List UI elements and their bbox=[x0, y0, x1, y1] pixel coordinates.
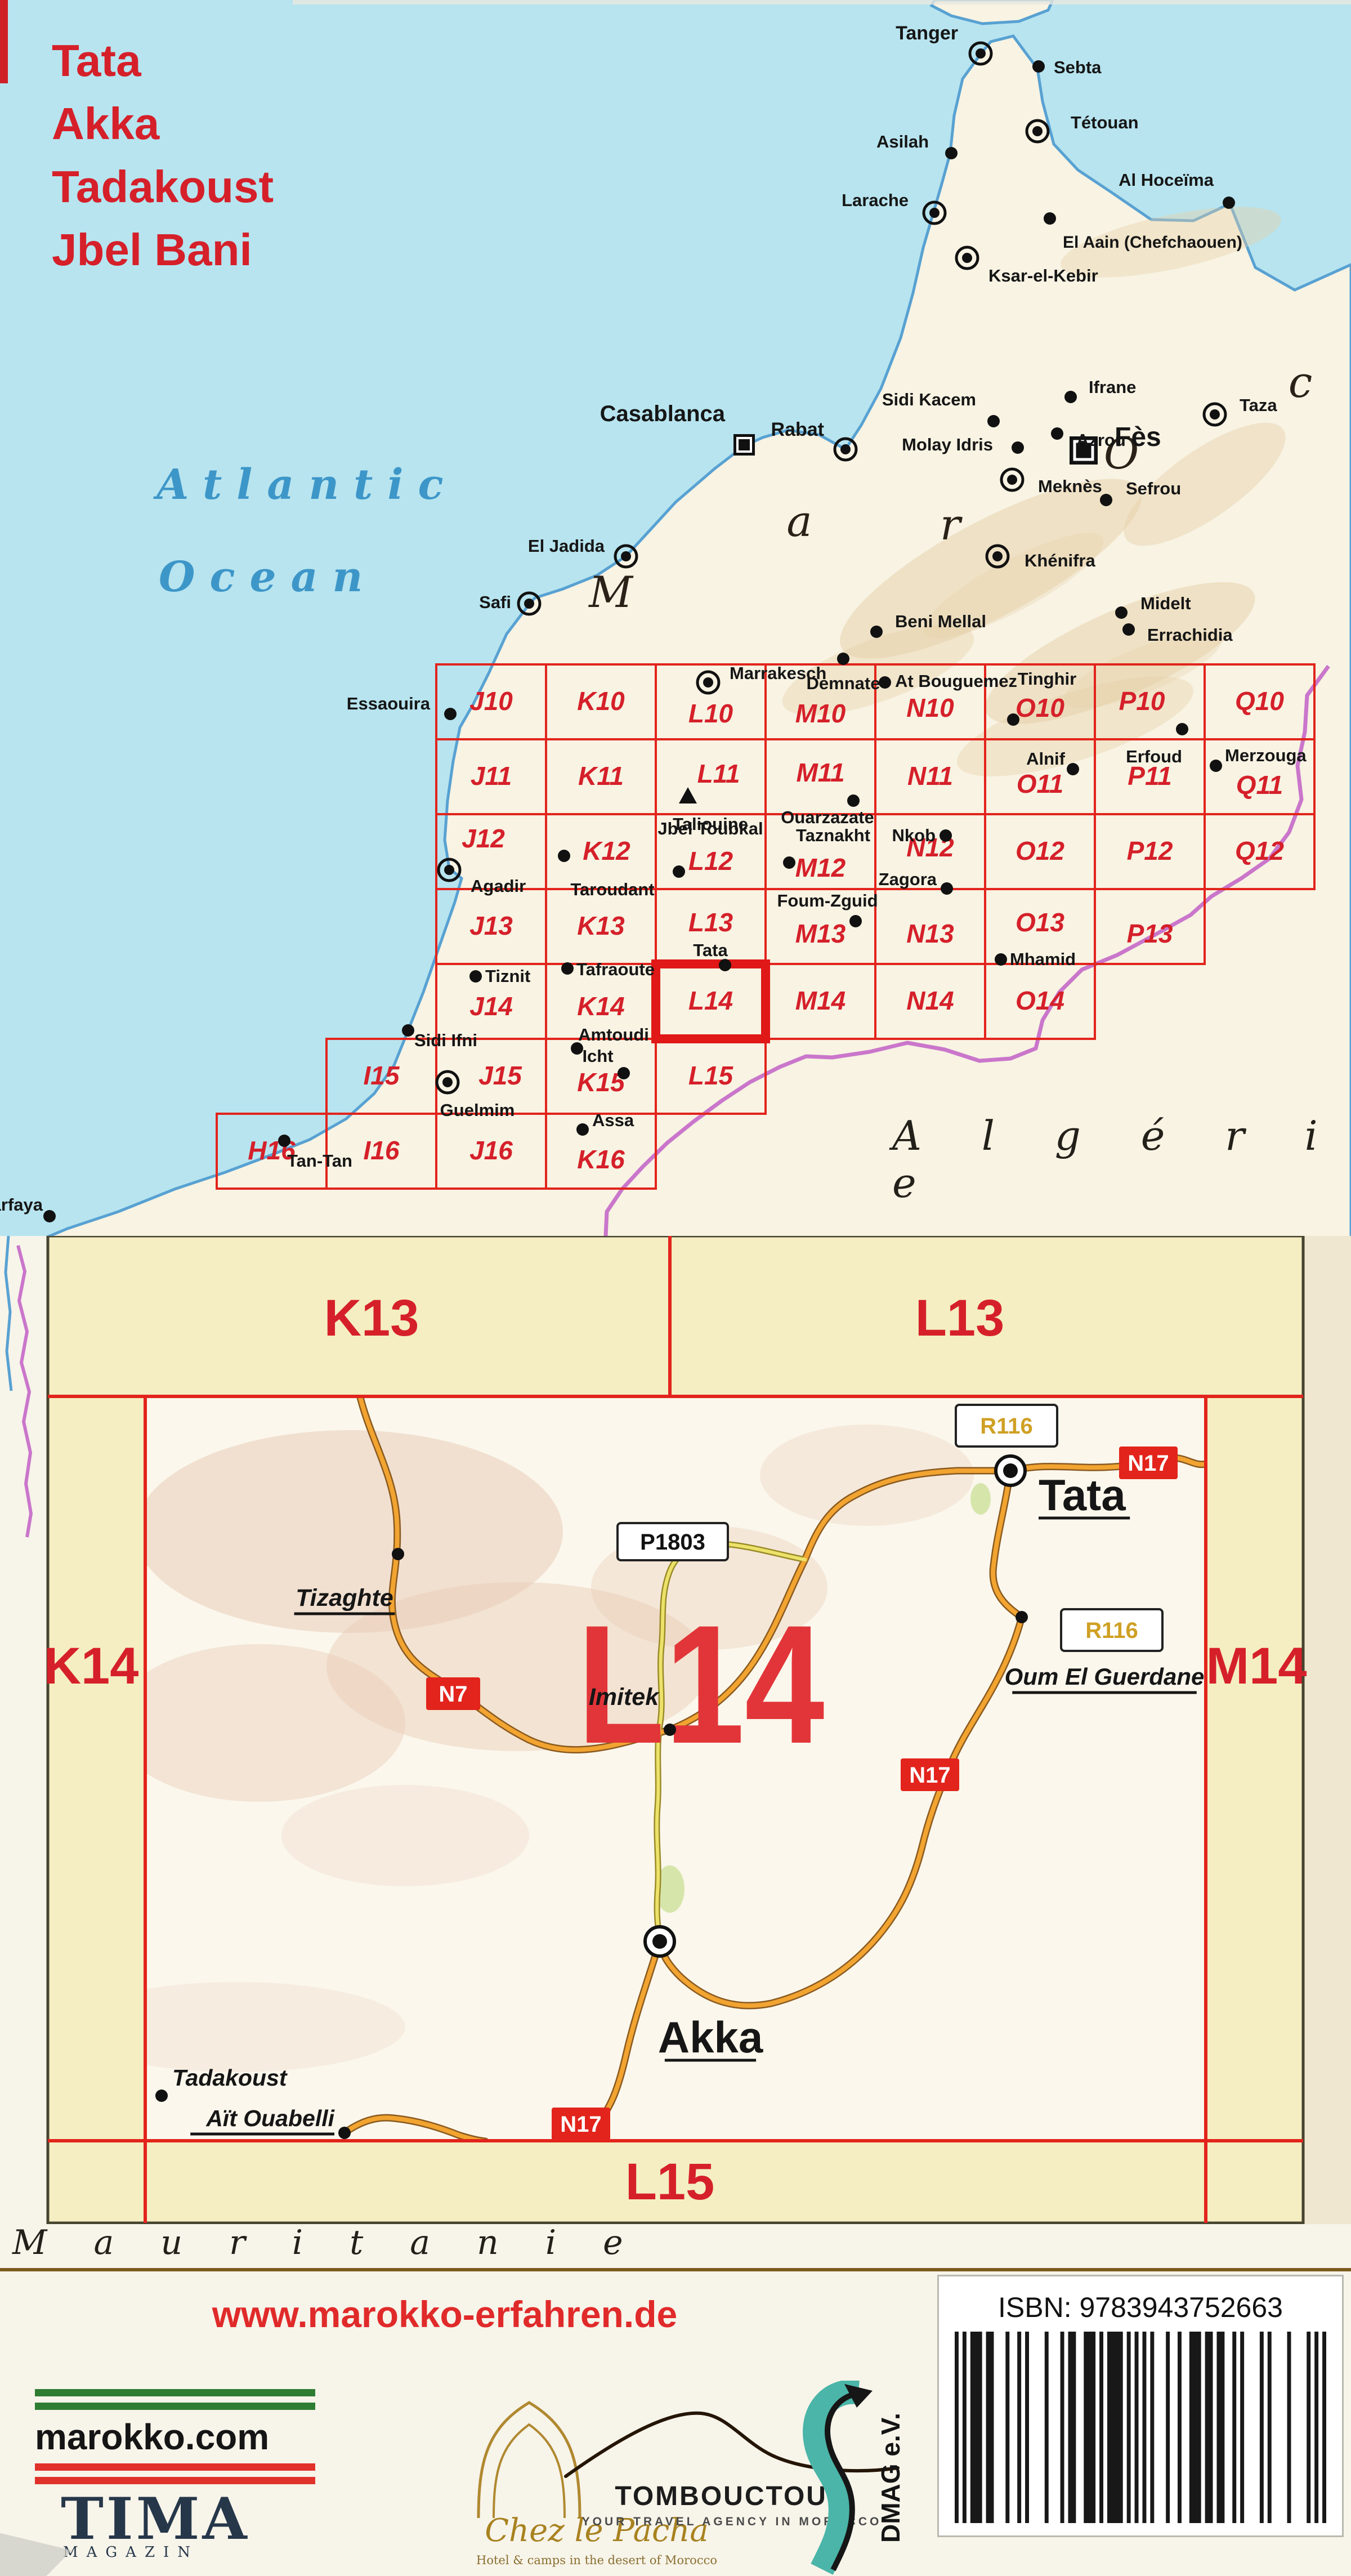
city-label-alnif: Alnif bbox=[1026, 749, 1066, 769]
barcode-bar bbox=[1099, 2332, 1103, 2523]
city-label-rabat: Rabat bbox=[771, 419, 824, 440]
grid-cell-label-M14: M14 bbox=[795, 986, 846, 1015]
city-label-taliouine: Taliouine bbox=[673, 814, 748, 834]
city-marker-zagora bbox=[941, 882, 953, 895]
city-label-tiznit: Tiznit bbox=[485, 966, 530, 986]
city-marker-tan-tan bbox=[278, 1135, 290, 1147]
route-shield-n17-label: N17 bbox=[909, 1763, 950, 1788]
city-label-mhamid: Mhamid bbox=[1010, 949, 1076, 969]
title-line-2: Akka bbox=[52, 92, 274, 155]
city-label-sebta: Sebta bbox=[1054, 57, 1102, 77]
barcode-bar bbox=[963, 2332, 967, 2523]
city-label-casablanca: Casablanca bbox=[600, 401, 726, 426]
city-label-sidi-ifni: Sidi Ifni bbox=[414, 1030, 477, 1050]
city-label-mekn-s: Meknès bbox=[1038, 476, 1102, 496]
title-line-4: Jbel Bani bbox=[52, 218, 274, 282]
barcode-bar bbox=[1017, 2332, 1021, 2523]
barcode-bar bbox=[1025, 2332, 1029, 2523]
city-marker-kh-nifra bbox=[992, 551, 1003, 561]
city-marker-taznakht bbox=[783, 856, 795, 869]
band-label-L15: L15 bbox=[625, 2153, 715, 2211]
city-marker-foum-zguid bbox=[849, 915, 862, 927]
city-marker-tanger bbox=[976, 48, 986, 59]
grid-cell-label-I16: I16 bbox=[364, 1136, 400, 1165]
cover-edge-top bbox=[293, 0, 1351, 5]
grid-cell-label-L14: L14 bbox=[688, 986, 733, 1015]
barcode-bar bbox=[1287, 2332, 1291, 2523]
place-label-imitek: Imitek bbox=[589, 1684, 660, 1711]
grid-cell-label-K16: K16 bbox=[577, 1145, 625, 1174]
title-line-3: Tadakoust bbox=[52, 155, 274, 218]
city-marker-alnif bbox=[1067, 763, 1079, 775]
city-label-tarfaya: Tarfaya bbox=[0, 1195, 43, 1215]
tima-label: TIMA bbox=[61, 2491, 250, 2547]
city-label-erfoud: Erfoud bbox=[1126, 747, 1182, 766]
city-marker-at-bouguemez bbox=[879, 676, 891, 689]
grid-cell-label-J12: J12 bbox=[462, 824, 505, 853]
place-marker-tata bbox=[1003, 1463, 1018, 1478]
city-label-icht: Icht bbox=[582, 1046, 613, 1066]
barcode-bar bbox=[1166, 2332, 1170, 2523]
city-marker-tarfaya bbox=[43, 1210, 56, 1222]
barcode bbox=[955, 2332, 1326, 2523]
grid-cell-label-J16: J16 bbox=[469, 1136, 513, 1165]
grid-cell-label-O14: O14 bbox=[1016, 986, 1064, 1015]
city-label-tan-tan: Tan-Tan bbox=[287, 1151, 352, 1171]
city-label-taroudant: Taroudant bbox=[570, 879, 654, 899]
barcode-bar bbox=[1189, 2332, 1201, 2523]
barcode-bar bbox=[1268, 2332, 1272, 2523]
grid-cell-label-L15: L15 bbox=[688, 1061, 734, 1090]
country-letter-c: c bbox=[1289, 357, 1313, 407]
city-label-sidi-kacem: Sidi Kacem bbox=[882, 390, 976, 409]
red-stripe-icon bbox=[35, 2477, 315, 2484]
city-marker-nkob bbox=[940, 829, 952, 842]
grid-cell-label-L10: L10 bbox=[688, 699, 733, 728]
barcode-bar bbox=[1314, 2332, 1318, 2523]
country-letter-a: a bbox=[786, 496, 812, 546]
city-marker-beni-mellal bbox=[870, 626, 883, 638]
logo-marokko-com[interactable]: marokko.com bbox=[35, 2389, 315, 2490]
grid-cell-label-Q11: Q11 bbox=[1236, 770, 1283, 800]
country-letter-M: M bbox=[588, 567, 634, 617]
barcode-bar bbox=[1061, 2332, 1064, 2523]
barcode-bar bbox=[1135, 2332, 1139, 2523]
ocean-label-ocean: Ocean bbox=[159, 553, 377, 601]
grid-cell-label-P10: P10 bbox=[1119, 686, 1165, 716]
grid-cell-label-Q12: Q12 bbox=[1235, 836, 1284, 865]
grid-cell-label-L13: L13 bbox=[688, 908, 733, 937]
city-marker-agadir bbox=[444, 865, 454, 875]
city-marker-al-hoce-ma bbox=[1223, 197, 1235, 209]
place-label-oum-el-guerdane: Oum El Guerdane bbox=[1005, 1663, 1205, 1690]
grid-cell-label-N13: N13 bbox=[906, 919, 954, 948]
ocean-label-atlantic: Atlantic bbox=[156, 461, 458, 509]
barcode-bar bbox=[1232, 2332, 1236, 2523]
grid-cell-label-K13: K13 bbox=[577, 911, 625, 940]
logo-tima[interactable]: TIMA MAGAZIN bbox=[61, 2491, 250, 2561]
city-label-assa: Assa bbox=[592, 1110, 634, 1130]
route-shield-n17-label: N17 bbox=[1128, 1451, 1169, 1476]
city-label-demnate: Demnate bbox=[807, 673, 880, 693]
place-label-tadakoust: Tadakoust bbox=[172, 2065, 288, 2091]
city-label-sefrou: Sefrou bbox=[1126, 479, 1181, 498]
city-label-ouarzazate: Ouarzazate bbox=[781, 807, 874, 827]
place-marker-tadakoust bbox=[155, 2090, 168, 2102]
barcode-bar bbox=[1216, 2332, 1224, 2523]
city-label-merzouga: Merzouga bbox=[1225, 745, 1307, 765]
isbn-box: ISBN: 9783943752663 bbox=[937, 2275, 1344, 2537]
pacha-sublabel: Hotel & camps in the desert of Morocco bbox=[428, 2553, 766, 2567]
band-label-M14: M14 bbox=[1206, 1637, 1307, 1695]
city-label-kh-nifra: Khénifra bbox=[1025, 551, 1096, 570]
grid-cell-label-M10: M10 bbox=[795, 699, 846, 728]
grid-cell-label-N10: N10 bbox=[906, 693, 954, 722]
city-marker-mekn-s bbox=[1007, 475, 1017, 485]
grid-cell-label-M11: M11 bbox=[796, 758, 844, 787]
city-marker-safi bbox=[524, 599, 534, 609]
city-label-midelt: Midelt bbox=[1140, 593, 1191, 613]
grid-cell-label-O13: O13 bbox=[1016, 908, 1064, 937]
grid-cell-label-J11: J11 bbox=[471, 761, 512, 791]
city-marker-tata bbox=[719, 959, 731, 971]
city-label-taza: Taza bbox=[1240, 395, 1277, 415]
grid-cell-label-K14: K14 bbox=[577, 992, 624, 1021]
grid-cell-label-O11: O11 bbox=[1017, 769, 1064, 798]
city-label-tanger: Tanger bbox=[896, 23, 958, 44]
barcode-bar bbox=[1322, 2332, 1326, 2523]
city-label-al-hoce-ma: Al Hoceïma bbox=[1119, 170, 1214, 190]
city-marker-taza bbox=[1210, 409, 1220, 419]
grid-cell-label-P12: P12 bbox=[1127, 836, 1173, 865]
city-marker-ifrane bbox=[1064, 391, 1077, 403]
terrain-shading bbox=[113, 1644, 405, 1802]
city-marker-azrou bbox=[1051, 427, 1063, 440]
city-marker-larache bbox=[929, 208, 940, 218]
grid-cell-label-N11: N11 bbox=[907, 761, 953, 791]
city-marker-guelmim bbox=[442, 1077, 453, 1087]
green-stripe-icon bbox=[35, 2403, 315, 2410]
grid-cell-label-K12: K12 bbox=[583, 836, 630, 865]
place-marker-akka bbox=[652, 1934, 667, 1949]
divider-rule bbox=[0, 2268, 1351, 2271]
grid-cell-label-M13: M13 bbox=[795, 919, 846, 948]
title-block: Tata Akka Tadakoust Jbel Bani bbox=[52, 29, 274, 282]
grid-cell-label-K11: K11 bbox=[578, 761, 624, 791]
city-marker-tiznit bbox=[469, 970, 482, 983]
grid-cell-label-O10: O10 bbox=[1016, 693, 1064, 722]
cover-right-edge bbox=[1303, 1236, 1351, 2224]
barcode-bar bbox=[1142, 2332, 1146, 2523]
city-label-t-touan: Tétouan bbox=[1071, 113, 1139, 132]
grid-cell-label-L12: L12 bbox=[688, 846, 733, 876]
barcode-bar bbox=[986, 2332, 994, 2523]
region-label-mauritanie: M a u r i t a n i e bbox=[12, 2223, 641, 2262]
city-marker-midelt bbox=[1115, 606, 1128, 619]
city-marker-marrakesch bbox=[703, 677, 713, 687]
city-marker-molay-idris bbox=[1012, 441, 1024, 454]
place-marker-oum-el-guerdane bbox=[1016, 1611, 1028, 1623]
city-marker-icht bbox=[618, 1067, 630, 1079]
terrain-shading bbox=[281, 1785, 529, 1886]
city-marker-t-touan bbox=[1032, 126, 1043, 136]
city-label-amtoudi: Amtoudi bbox=[578, 1025, 649, 1044]
grid-cell-label-I15: I15 bbox=[364, 1061, 400, 1090]
route-shield-r116-label: R116 bbox=[1085, 1618, 1138, 1643]
barcode-bar bbox=[1307, 2332, 1310, 2523]
city-marker-sefrou bbox=[1100, 494, 1112, 506]
city-marker-merzouga bbox=[1210, 760, 1222, 772]
city-marker-mhamid bbox=[995, 953, 1007, 966]
city-marker-tinghir bbox=[1007, 713, 1019, 726]
route-shield-n17-label: N17 bbox=[560, 2112, 601, 2137]
barcode-bar bbox=[1005, 2332, 1009, 2523]
city-label-nkob: Nkob bbox=[892, 825, 936, 845]
barcode-bar bbox=[1240, 2332, 1244, 2523]
city-marker-asilah bbox=[945, 147, 958, 159]
city-marker-ksar-el-kebir bbox=[962, 253, 972, 263]
grid-cell-label-Q10: Q10 bbox=[1235, 686, 1284, 716]
title-line-1: Tata bbox=[52, 29, 274, 92]
city-label-molay-idris: Molay Idris bbox=[902, 435, 993, 454]
city-marker-errachidia bbox=[1122, 623, 1135, 636]
city-label-foum-zguid: Foum-Zguid bbox=[777, 891, 878, 910]
barcode-bar bbox=[1205, 2332, 1213, 2523]
dmag-label: DMAG e.V. bbox=[875, 2381, 909, 2575]
country-letter-r: r bbox=[940, 499, 963, 550]
grid-cell-label-O12: O12 bbox=[1016, 836, 1064, 865]
place-label-a-t-ouabelli: Aït Ouabelli bbox=[205, 2105, 335, 2131]
grid-cell-label-J13: J13 bbox=[469, 911, 513, 940]
border-line-tail bbox=[18, 1245, 31, 1537]
grid-cell-label-L11: L11 bbox=[697, 759, 740, 788]
city-marker-taroudant bbox=[558, 850, 570, 862]
red-stripe-icon bbox=[35, 2463, 315, 2471]
barcode-bar bbox=[1045, 2332, 1049, 2523]
map-back-cover: J10K10L10M10N10O10P10Q10J11K11L11M11N11O… bbox=[0, 0, 1351, 2576]
grid-cell-label-P13: P13 bbox=[1127, 919, 1173, 948]
grid-cell-label-K10: K10 bbox=[577, 686, 625, 716]
city-label-ifrane: Ifrane bbox=[1089, 377, 1136, 397]
city-label-errachidia: Errachidia bbox=[1147, 625, 1233, 645]
cover-edge-red bbox=[0, 0, 8, 83]
place-label-tata: Tata bbox=[1039, 1470, 1126, 1520]
city-marker-rabat bbox=[840, 444, 851, 454]
city-label-ksar-el-kebir: Ksar-el-Kebir bbox=[988, 266, 1098, 285]
route-shield-r116-label: R116 bbox=[980, 1414, 1032, 1439]
oasis-patch bbox=[970, 1483, 991, 1515]
barcode-bar bbox=[1178, 2332, 1182, 2523]
city-label-tinghir: Tinghir bbox=[1018, 669, 1076, 689]
band-label-K14: K14 bbox=[44, 1637, 139, 1695]
city-marker-sidi-ifni bbox=[402, 1024, 414, 1037]
city-label-tafraoute: Tafraoute bbox=[576, 959, 655, 979]
coast-tail bbox=[6, 1236, 11, 1391]
city-marker-sebta bbox=[1032, 60, 1045, 73]
barcode-bar bbox=[1084, 2332, 1095, 2523]
region-label-algerie: A l g é r i e bbox=[892, 1112, 1351, 1207]
band-label-L13: L13 bbox=[915, 1289, 1005, 1347]
city-label-larache: Larache bbox=[842, 190, 909, 210]
grid-cell-label-J10: J10 bbox=[469, 686, 513, 716]
green-stripe-icon bbox=[35, 2389, 315, 2396]
grid-cell-label-N14: N14 bbox=[906, 986, 954, 1015]
route-shield-n7-label: N7 bbox=[439, 1682, 467, 1707]
city-marker-tafraoute bbox=[561, 962, 574, 975]
marokko-com-label: marokko.com bbox=[35, 2416, 315, 2458]
city-marker-essaouira bbox=[444, 708, 457, 720]
city-marker-el-jadida bbox=[621, 551, 631, 561]
city-marker-assa bbox=[576, 1123, 589, 1136]
city-marker-taliouine bbox=[673, 865, 685, 878]
city-marker-demnate bbox=[837, 653, 849, 665]
place-label-akka: Akka bbox=[658, 2012, 763, 2062]
isbn-text: ISBN: 9783943752663 bbox=[939, 2291, 1342, 2324]
place-marker-imitek bbox=[664, 1724, 676, 1736]
city-label-asilah: Asilah bbox=[876, 132, 929, 151]
barcode-bar bbox=[955, 2332, 959, 2523]
city-label-guelmim: Guelmim bbox=[440, 1100, 515, 1120]
barcode-bar bbox=[970, 2332, 982, 2523]
route-shield-p1803-label: P1803 bbox=[640, 1530, 705, 1555]
city-label-el-aain-chefchaouen-: El Aain (Chefchaouen) bbox=[1063, 233, 1242, 252]
barcode-bar bbox=[1150, 2332, 1154, 2523]
city-label-azrou: Azrou bbox=[1076, 430, 1126, 450]
website-url[interactable]: www.marokko-erfahren.de bbox=[135, 2293, 754, 2336]
city-label-safi: Safi bbox=[479, 592, 511, 612]
detail-map-l14: L14K13L13K14M14L15R116N17R116N7P1803N17N… bbox=[0, 1236, 1351, 2224]
city-label-at-bouguemez: At Bouguemez bbox=[895, 671, 1017, 691]
grid-cell-label-M12: M12 bbox=[795, 853, 846, 882]
barcode-bar bbox=[1107, 2332, 1123, 2523]
dmag-camel-icon bbox=[788, 2381, 884, 2575]
barcode-bar bbox=[1068, 2332, 1076, 2523]
city-label-el-jadida: El Jadida bbox=[528, 536, 605, 556]
city-marker-el-aain-chefchaouen- bbox=[1044, 212, 1056, 225]
place-marker-tizaghte bbox=[392, 1548, 404, 1560]
city-label-beni-mellal: Beni Mellal bbox=[895, 611, 986, 631]
city-label-zagora: Zagora bbox=[879, 869, 937, 889]
grid-cell-label-J15: J15 bbox=[478, 1061, 522, 1090]
city-label-essaouira: Essaouira bbox=[347, 694, 431, 713]
city-marker-ouarzazate bbox=[847, 794, 860, 807]
grid-cell-label-J14: J14 bbox=[469, 992, 513, 1021]
city-label-taznakht: Taznakht bbox=[796, 825, 870, 845]
band-label-K13: K13 bbox=[324, 1289, 419, 1347]
barcode-bar bbox=[1127, 2332, 1131, 2523]
city-label-tata: Tata bbox=[693, 940, 728, 960]
place-marker-a-t-ouabelli bbox=[338, 2127, 351, 2139]
city-label-agadir: Agadir bbox=[471, 876, 526, 896]
city-marker-erfoud bbox=[1176, 723, 1188, 735]
city-marker-sidi-kacem bbox=[987, 415, 1000, 427]
place-label-tizaghte: Tizaghte bbox=[296, 1584, 393, 1611]
barcode-bar bbox=[1260, 2332, 1264, 2523]
